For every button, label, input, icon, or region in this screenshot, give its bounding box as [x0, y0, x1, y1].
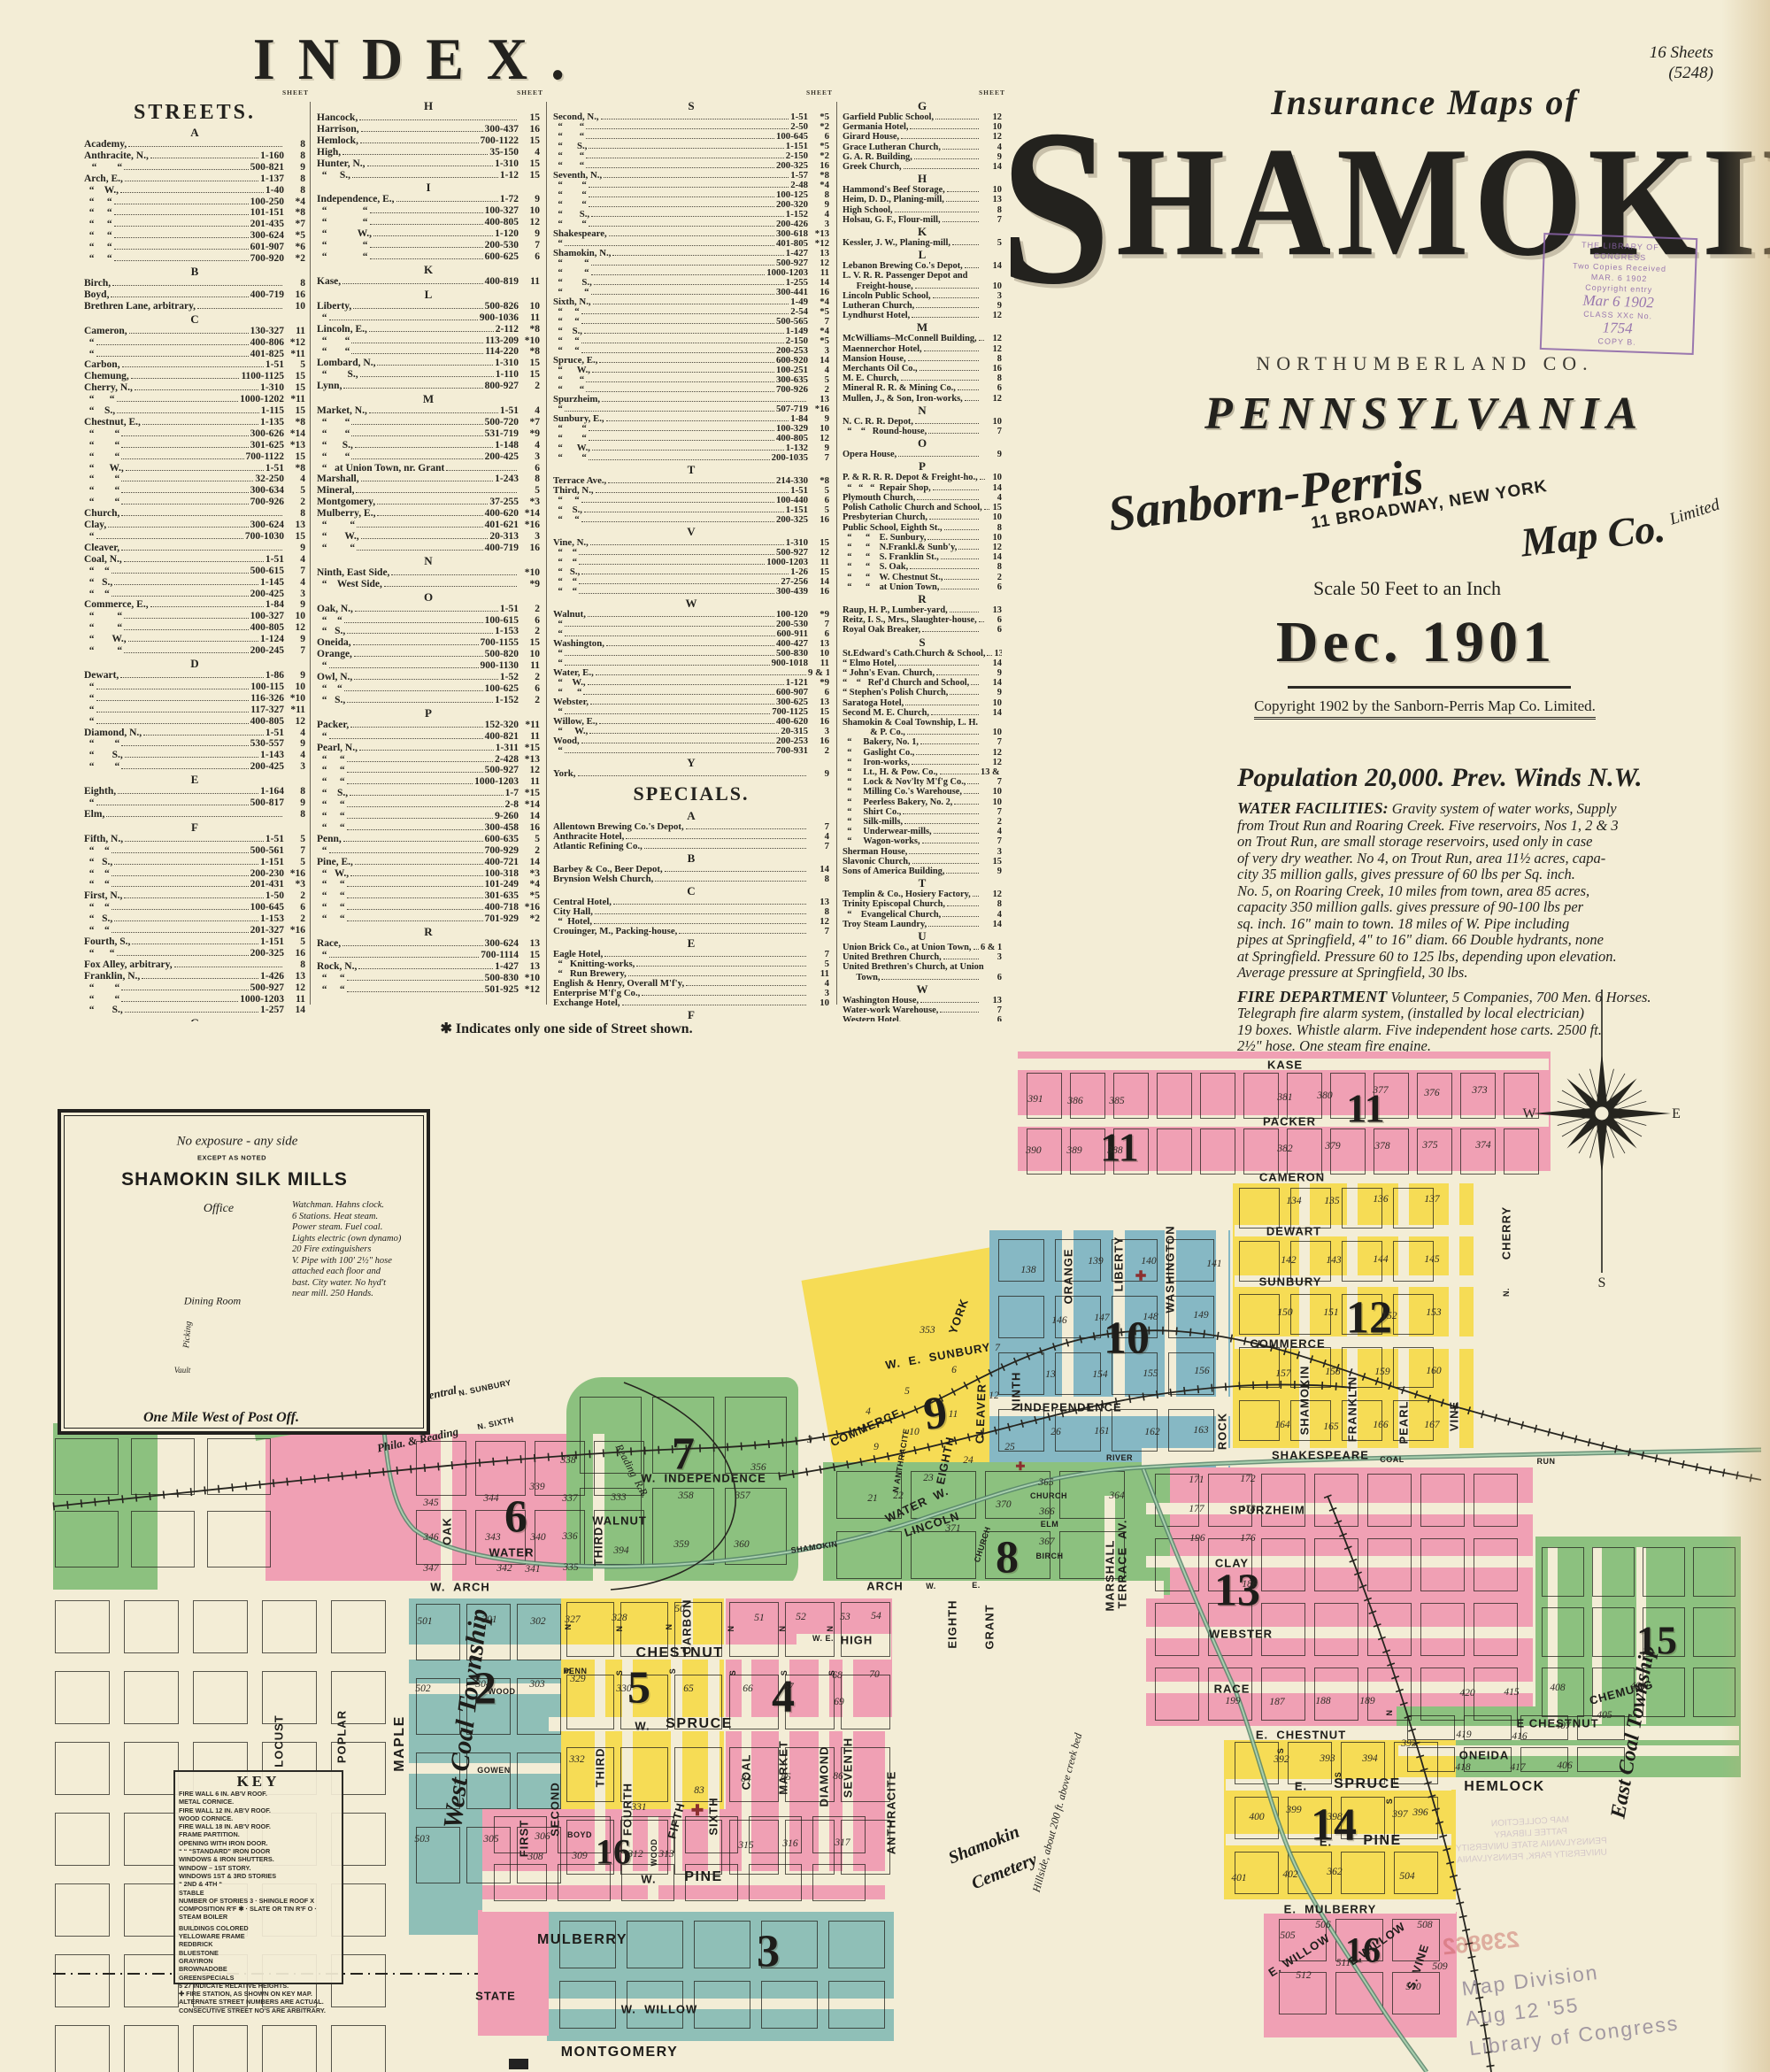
- house-range: 1-135: [260, 417, 284, 428]
- block-number: 512: [1296, 1970, 1311, 1981]
- city-block: [1367, 1603, 1412, 1656]
- block-number: 155: [1143, 1368, 1158, 1379]
- block-number: 143: [1326, 1255, 1341, 1266]
- street-name: Liberty,: [317, 301, 351, 312]
- sheet-number: 9: [981, 688, 1002, 697]
- sheet-number: 12: [981, 543, 1002, 552]
- index-row: City Hall,8: [553, 907, 829, 917]
- dot-leader: [135, 389, 258, 390]
- block-number: 402: [1282, 1869, 1297, 1880]
- dot-leader: [599, 723, 774, 724]
- sheet-number: 16: [519, 124, 540, 135]
- index-row: “ Evangelical Church,4: [843, 910, 1002, 920]
- street-label: SUNBURY: [1259, 1275, 1322, 1289]
- dot-leader: [912, 317, 979, 318]
- dot-leader: [944, 579, 979, 580]
- street-label: CHERRY: [1500, 1206, 1513, 1259]
- index-row: Fifth, N.,1-515: [84, 834, 305, 845]
- sheet-number: 8: [981, 374, 1002, 383]
- city-block: [193, 2025, 248, 2072]
- index-row: “ “201-327*16: [84, 925, 305, 936]
- sheet-number: 14: [981, 261, 1002, 271]
- street-label: E. MULBERRY: [1284, 1903, 1377, 1916]
- street-name: “ “: [84, 162, 122, 173]
- block-number: 50: [674, 1604, 685, 1614]
- street-gap: [478, 2041, 894, 2052]
- block-number: 305: [483, 1834, 498, 1845]
- block-number: 394: [613, 1545, 628, 1556]
- index-row: Hemlock,700-112215: [317, 135, 540, 147]
- street-name: “ “: [84, 428, 119, 440]
- street-name: Second M. E. Church,: [843, 708, 929, 718]
- dot-leader: [584, 333, 784, 334]
- house-range: 200-325: [250, 948, 284, 959]
- city-block: [1367, 1538, 1412, 1591]
- block-number: 10: [909, 1427, 920, 1437]
- sheet-number: 5: [519, 485, 540, 497]
- dot-leader: [898, 665, 979, 666]
- block-number: 395: [1401, 1738, 1416, 1749]
- dot-leader: [910, 568, 979, 569]
- sheet-number: 2: [981, 817, 1002, 827]
- dot-leader: [589, 196, 774, 197]
- dot-leader: [347, 702, 493, 703]
- house-range: 1-257: [260, 1005, 284, 1016]
- dot-leader: [347, 886, 483, 887]
- index-row: Templin & Co., Hosiery Factory,12: [843, 890, 1002, 899]
- street-name: “ Underwear-mills,: [843, 827, 932, 836]
- street-label: E.: [1320, 1836, 1332, 1849]
- index-column: HHancock,15Harrison,300-43716Hemlock,700…: [317, 99, 540, 1021]
- sheet-number: 6: [986, 615, 1002, 625]
- dot-leader: [941, 589, 979, 589]
- dot-leader: [377, 504, 488, 505]
- street-name: Chestnut, E.,: [84, 417, 141, 428]
- dot-leader: [586, 391, 774, 392]
- block-number: 53: [840, 1612, 850, 1622]
- index-row: Second, N.,1-51*5: [553, 112, 829, 122]
- index-row: “ Peerless Bakery, No. 2,10: [843, 797, 1002, 807]
- sheet-number: 5: [981, 238, 1002, 248]
- sheet-number: *5: [284, 230, 305, 242]
- street-label: E.: [1295, 1780, 1307, 1793]
- dot-leader: [96, 689, 250, 689]
- sheet-number: 10: [519, 205, 540, 217]
- index-row: Anthracite, N.,1-1608: [84, 150, 305, 162]
- sheet-number: 6: [519, 683, 540, 695]
- street-name: “ “ S. Oak,: [843, 562, 908, 572]
- street-name: “ “: [317, 984, 345, 996]
- street-name: “ “: [84, 738, 119, 750]
- city-block: [1314, 1603, 1358, 1656]
- key-line: WINDOWS 1ST & 3RD STORIES: [179, 1872, 338, 1880]
- dot-leader: [112, 886, 249, 887]
- city-block: [1693, 1668, 1735, 1717]
- index-row: Raup, H. P., Lumber-yard,13: [843, 605, 1002, 615]
- street-name: Hemlock,: [317, 135, 358, 147]
- sheet-number: 3: [284, 589, 305, 600]
- city-block: [841, 1675, 890, 1729]
- index-letter-header: N: [843, 404, 1002, 417]
- house-range: 100-250: [250, 196, 284, 208]
- index-row: “ Shirt Co.,7: [843, 807, 1002, 817]
- city-block: [55, 1813, 110, 1866]
- sheet-number: 15: [519, 358, 540, 369]
- dot-leader: [665, 871, 806, 872]
- index-row: “ “ at Union Town,6: [843, 582, 1002, 592]
- street-name: Trinity Episcopal Church,: [843, 899, 945, 909]
- district-area: [478, 1910, 549, 2036]
- house-range: 500-720: [485, 417, 519, 428]
- block-number: 159: [1374, 1367, 1389, 1377]
- block-number: 178: [1240, 1504, 1255, 1514]
- index-row: Oneida,700-115515: [317, 637, 540, 649]
- index-row: Atlantic Refining Co.,7: [553, 842, 829, 851]
- street-name: Hammond's Beef Storage,: [843, 185, 945, 195]
- key-color-row: GREENSPECIALS: [179, 1974, 338, 1982]
- dot-leader: [121, 745, 248, 746]
- street-label: E. CHESTNUT: [1256, 1729, 1346, 1742]
- index-letter-header: B: [553, 851, 829, 865]
- city-block: [1460, 1073, 1496, 1119]
- index-row: Shamokin & Coal Township, L. H.: [843, 718, 1002, 728]
- dot-leader: [150, 606, 264, 607]
- sheet-number: 13: [981, 996, 1002, 1005]
- index-row: “ “ Round-house,7: [843, 427, 1002, 436]
- sheet-number: 12: [981, 132, 1002, 142]
- inset-note-line: Lights electric (own dynamo): [292, 1234, 427, 1245]
- city-block: [55, 1883, 110, 1937]
- index-row: “ Elmo Hotel,14: [843, 659, 1002, 668]
- dot-leader: [128, 146, 282, 147]
- house-range: 400-721: [485, 857, 519, 868]
- sheet-number: 4: [981, 493, 1002, 503]
- index-letter-header: G: [843, 99, 1002, 112]
- sheet-number: 8: [284, 173, 305, 185]
- index-row: “ “1000-1202*11: [84, 394, 305, 405]
- sheet-number: 4: [519, 440, 540, 451]
- dot-leader: [126, 470, 264, 471]
- index-row: “ “200-4253: [317, 451, 540, 463]
- dot-leader: [589, 459, 770, 460]
- house-range: 500-817: [250, 797, 284, 809]
- dot-leader: [581, 502, 774, 503]
- street-name: Lynn,: [317, 381, 342, 392]
- dot-leader: [565, 752, 774, 753]
- street-name: Sons of America Building,: [843, 867, 944, 876]
- sheet-number: *11: [284, 705, 305, 716]
- dot-leader: [895, 212, 979, 212]
- dot-leader: [589, 430, 774, 431]
- dot-leader: [122, 366, 264, 367]
- index-row: Heim, D. D., Planing-mill,13: [843, 195, 1002, 204]
- dot-leader: [594, 284, 784, 285]
- index-row: Owl, N.,1-522: [317, 672, 540, 683]
- index-row: “400-806*12: [84, 337, 305, 349]
- street-label: DIAMOND: [818, 1745, 831, 1806]
- house-range: 1-427: [495, 961, 519, 973]
- fire-station-icon: ✚: [1135, 1268, 1147, 1285]
- street-name: Merchants Oil Co.,: [843, 364, 918, 374]
- index-row: L. V. R. R. Passenger Depot and: [843, 271, 1002, 281]
- house-range: 1-152: [495, 695, 519, 706]
- index-row: “ “1000-120311: [553, 558, 829, 567]
- dot-leader: [352, 177, 498, 178]
- block-number: 151: [1323, 1307, 1338, 1318]
- block-number: 393: [1320, 1753, 1335, 1764]
- index-row: “ “400-80512: [84, 622, 305, 634]
- sheet-number: 13: [981, 605, 1002, 615]
- dot-leader: [121, 435, 248, 436]
- sheet-number: 10: [981, 185, 1002, 195]
- inset-office-label: Office: [204, 1202, 234, 1216]
- street-name: First, N.,: [84, 890, 122, 902]
- house-range: 1-148: [495, 440, 519, 451]
- dot-leader: [125, 757, 258, 758]
- dot-leader: [586, 381, 774, 382]
- block-number: 66: [743, 1683, 753, 1694]
- street-name: Western Hotel,: [843, 1015, 901, 1021]
- index-row: “ S.,1-11515: [84, 405, 305, 417]
- dot-leader: [360, 376, 494, 377]
- dot-leader: [384, 586, 517, 587]
- street-name: “ “ “ Repair Shop,: [843, 483, 931, 493]
- sheet-number: 6: [981, 582, 1002, 592]
- index-row: Orange,500-82010: [317, 649, 540, 660]
- street-name: Commerce, E.,: [84, 599, 149, 611]
- dot-leader: [622, 1005, 806, 1005]
- street-name: “ “: [84, 948, 115, 959]
- sheet-number: 9: [981, 301, 1002, 311]
- house-range: 200-425: [250, 761, 284, 773]
- index-row: “ S.,1-1484: [317, 440, 540, 451]
- block-number: 308: [527, 1852, 543, 1862]
- index-row: “400-82111: [317, 731, 540, 743]
- street-name: Hunter, N.,: [317, 158, 366, 170]
- index-row: “ “ Ref'd Church and School,14: [843, 678, 1002, 688]
- street-label: W.: [926, 1582, 936, 1591]
- sheet-number: 10: [981, 728, 1002, 737]
- house-range: 401-621: [485, 520, 519, 531]
- index-row: “ “200-32516: [553, 515, 829, 525]
- sheet-number: 12: [519, 217, 540, 228]
- compass-letter: S: [1598, 1275, 1606, 1290]
- city-block: [1417, 1128, 1452, 1175]
- index-row: “ “ E. Sunbury,10: [843, 533, 1002, 543]
- sheet-number: 9: [519, 194, 540, 205]
- index-row: “ Underwear-mills,4: [843, 827, 1002, 836]
- sheet-number: 6: [284, 902, 305, 913]
- street-name: Orange,: [317, 649, 352, 660]
- street-name: Slavonic Church,: [843, 857, 911, 867]
- dot-leader: [581, 574, 789, 574]
- block-number: 375: [1422, 1140, 1437, 1151]
- house-range: 1-310: [495, 158, 519, 170]
- index-letter-header: H: [843, 172, 1002, 185]
- key-color-row: REDBRICK: [179, 1940, 338, 1948]
- dot-leader: [370, 247, 483, 248]
- index-row: “ Bakery, No. 1,7: [843, 737, 1002, 747]
- index-row: Mineral R. R. & Mining Co.,6: [843, 383, 1002, 393]
- index-row: “ “500-92712: [84, 982, 305, 994]
- key-line: WINDOWS & IRON SHUTTERS.: [179, 1855, 338, 1863]
- key-color-name: BLUE: [179, 1949, 196, 1957]
- city-block: [1235, 1742, 1279, 1784]
- index-row: Arch, E.,1-1378: [84, 173, 305, 185]
- street-name: “ W.,: [84, 185, 119, 196]
- index-row: Freight-house,10: [843, 281, 1002, 291]
- index-row: “100-11510: [84, 682, 305, 693]
- index-row: “ “500-830*10: [317, 973, 540, 984]
- street-name: “ “ N.Frankl.& Sunb'y,: [843, 543, 957, 552]
- key-color-name: GRAY: [179, 1957, 196, 1965]
- street-name: Mansion House,: [843, 354, 906, 364]
- street-name: “ “: [84, 589, 110, 600]
- house-range: 1-164: [260, 786, 284, 797]
- map-key-legend: KEYFIRE WALL 6 IN. AB'V ROOF.METAL CORNI…: [173, 1770, 343, 1984]
- house-range: 501-925: [485, 984, 519, 996]
- street-name: Greek Church,: [843, 162, 902, 172]
- inset-note-line: 6 Stations. Heat steam.: [292, 1212, 427, 1223]
- street-label: N. SUNBURY: [458, 1378, 512, 1398]
- index-letter-header: W: [553, 597, 829, 610]
- dot-leader: [907, 734, 979, 735]
- dot-leader: [131, 378, 240, 379]
- sheet-number: 8: [284, 508, 305, 520]
- index-row: “ “700-112215: [84, 451, 305, 463]
- index-row: “ “530-5579: [84, 738, 305, 750]
- street-name: “ “: [84, 622, 122, 634]
- dot-leader: [112, 852, 249, 853]
- house-range: 300-439: [776, 587, 808, 597]
- index-row: “700-9292: [317, 845, 540, 857]
- house-range: 100-625: [485, 683, 519, 695]
- index-row: Saratoga Hotel,10: [843, 698, 1002, 708]
- block-number: 176: [1240, 1533, 1255, 1544]
- dot-leader: [121, 768, 248, 769]
- index-row: “ “100-6456: [84, 902, 305, 913]
- dot-leader: [901, 138, 979, 139]
- index-row: “ at Union Town, nr. Grant6: [317, 463, 540, 474]
- city-block: [1239, 1400, 1280, 1441]
- sheet-number: 10: [981, 281, 1002, 291]
- street-name: Heim, D. D., Planing-mill,: [843, 195, 944, 204]
- house-range: 1000-1203: [240, 994, 284, 1005]
- sheet-number: *2: [284, 253, 305, 265]
- key-color-meaning: BRICK: [192, 1940, 212, 1948]
- index-letter-header: D: [84, 657, 305, 670]
- street-name: “ “: [84, 485, 119, 497]
- block-number: 407: [1555, 1721, 1570, 1731]
- city-block: [1542, 1607, 1584, 1657]
- block-number: 317: [835, 1837, 850, 1848]
- street-name: “ W.,: [317, 868, 349, 880]
- dot-leader: [121, 481, 253, 481]
- street-name: “: [84, 349, 95, 360]
- dot-leader: [361, 481, 494, 481]
- block-number: 165: [1323, 1421, 1338, 1432]
- dot-leader: [589, 226, 774, 227]
- dot-leader: [599, 362, 774, 363]
- street-name: M. E. Church,: [843, 374, 899, 383]
- house-range: 1-110: [496, 369, 519, 381]
- index-letter-header: M: [843, 320, 1002, 334]
- dot-leader: [586, 138, 774, 139]
- block-number: 365: [1038, 1477, 1053, 1488]
- street-name: Cleaver,: [84, 543, 119, 554]
- street-name: “ S.,: [317, 695, 345, 706]
- dot-leader: [565, 635, 775, 636]
- block-number: 416: [1512, 1731, 1527, 1742]
- sheet-number: 5: [519, 834, 540, 845]
- street-name: “ Silk-mills,: [843, 817, 903, 827]
- street-name: “ “ Round-house,: [843, 427, 927, 436]
- street-name: Royal Oak Breaker,: [843, 625, 920, 635]
- block-number: 401: [1231, 1873, 1246, 1883]
- street-label: N. SIXTH: [476, 1415, 514, 1432]
- dot-leader: [581, 352, 774, 353]
- index-row: “900-113011: [317, 660, 540, 672]
- sheet-number: 14: [981, 552, 1002, 562]
- sheet-number: 9: [284, 162, 305, 173]
- sheet-number: 12: [284, 982, 305, 994]
- sheet-number: 8: [981, 562, 1002, 572]
- index-row: “700-9312: [553, 746, 829, 756]
- index-row: St.Edward's Cath.Church & School,13: [843, 649, 1002, 659]
- index-row: “ “600-6256: [317, 251, 540, 263]
- sheet-number: 9: [284, 599, 305, 611]
- index-column: GGarfield Public School,12Germania Hotel…: [843, 99, 1002, 1021]
- dot-leader: [914, 158, 979, 159]
- dot-leader: [933, 489, 979, 490]
- sheet-number: 11: [519, 312, 540, 324]
- house-range: 700-920: [250, 253, 284, 265]
- street-name: Water-work Warehouse,: [843, 1005, 938, 1015]
- house-range: 1-160: [260, 150, 284, 162]
- dot-leader: [343, 388, 482, 389]
- city-block: [1261, 1474, 1305, 1527]
- city-block: [331, 1600, 386, 1653]
- street-label: HEMLOCK: [1464, 1779, 1544, 1795]
- index-row: Chemung,1100-112515: [84, 371, 305, 382]
- dot-leader: [579, 583, 779, 584]
- sheet-number: 14: [981, 162, 1002, 172]
- dot-leader: [586, 167, 774, 168]
- street-name: “ “: [84, 761, 119, 773]
- sheet-number: 3: [284, 761, 305, 773]
- street-label: ELM: [1041, 1520, 1059, 1529]
- house-range: 200-1035: [772, 453, 808, 463]
- street-label: ARCH: [866, 1580, 904, 1593]
- dot-leader: [355, 864, 483, 865]
- index-row: Academy,8: [84, 139, 305, 150]
- street-name: “ Shirt Co.,: [843, 807, 901, 817]
- sheet-column-header: SHEET: [282, 89, 309, 96]
- block-number: 357: [735, 1490, 750, 1501]
- block-number: 67: [783, 1682, 794, 1692]
- city-block: [1239, 1347, 1280, 1388]
- street-name: Lebanon Brewing Co.'s Depot,: [843, 261, 963, 271]
- sheet-number: 15: [519, 950, 540, 961]
- dot-leader: [604, 956, 806, 957]
- city-block: [1243, 1128, 1279, 1175]
- street-label: POPLAR: [335, 1710, 349, 1763]
- dot-leader: [602, 401, 806, 402]
- sheet-number: 8: [981, 523, 1002, 533]
- index-letter-header: C: [84, 312, 305, 326]
- index-row: Hammond's Beef Storage,10: [843, 185, 1002, 195]
- index-row: Second M. E. Church,14: [843, 708, 1002, 718]
